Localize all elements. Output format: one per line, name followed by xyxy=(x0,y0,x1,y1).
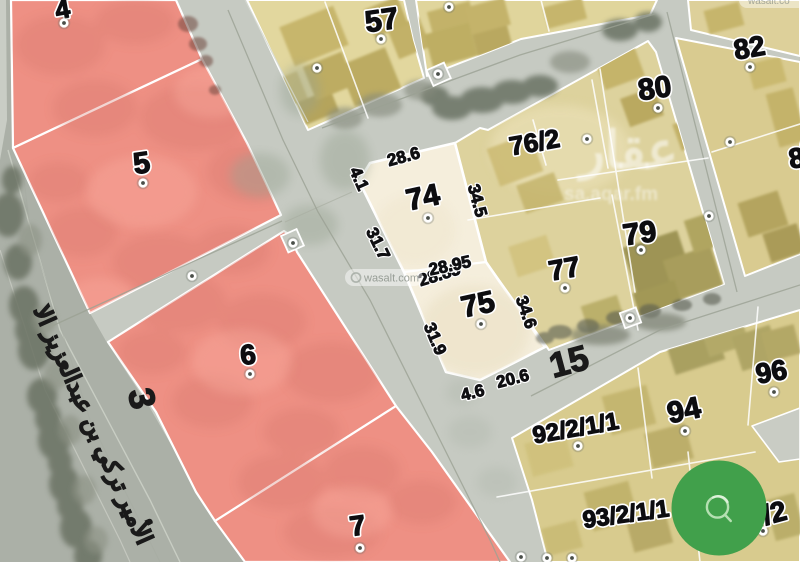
svg-text:عقار: عقار xyxy=(577,122,678,182)
svg-text:75: 75 xyxy=(458,285,498,324)
svg-text:94: 94 xyxy=(664,391,704,430)
svg-text:82: 82 xyxy=(731,30,767,66)
svg-text:wasalt.co: wasalt.co xyxy=(747,0,790,7)
svg-text:wasalt.com: wasalt.com xyxy=(363,273,419,285)
svg-text:74: 74 xyxy=(403,178,443,217)
svg-text:6: 6 xyxy=(239,338,258,370)
svg-text:77: 77 xyxy=(546,251,582,287)
svg-text:80: 80 xyxy=(636,70,674,107)
svg-text:sa.aqar.fm: sa.aqar.fm xyxy=(564,184,658,205)
svg-text:96: 96 xyxy=(753,354,789,390)
